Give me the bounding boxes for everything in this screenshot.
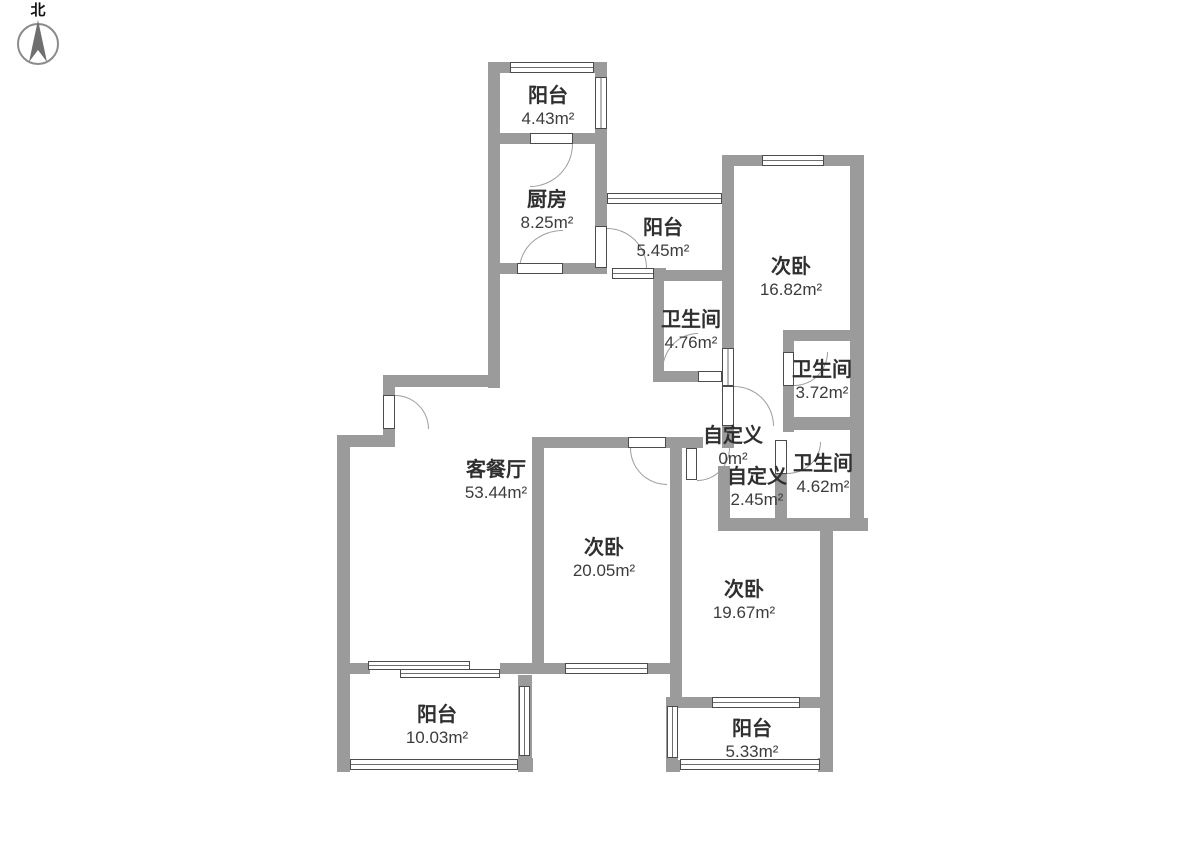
window-icon [612, 268, 654, 279]
wall-segment [722, 155, 734, 348]
wall-segment [532, 437, 628, 448]
window-icon [595, 77, 607, 129]
room-label-bedroom-northeast: 次卧16.82m² [760, 255, 822, 301]
wall-segment [653, 371, 698, 382]
room-label-custom-zero: 自定义0m² [703, 424, 763, 470]
wall-segment [664, 270, 722, 281]
wall-segment [337, 435, 350, 675]
room-label-bedroom-southeast: 次卧19.67m² [713, 578, 775, 624]
room-label-living-dining: 客餐厅53.44m² [465, 458, 527, 504]
door-swing-arc [630, 448, 667, 485]
floorplan-canvas: 北 阳台4.43m² 厨房8.25m² 阳台5.45m² 次卧16.82m² 卫… [0, 0, 1200, 860]
wall-segment [824, 155, 850, 166]
compass-icon [14, 20, 62, 66]
wall-segment [500, 663, 565, 674]
door-swing-arc [530, 144, 573, 187]
wall-segment [488, 263, 517, 274]
wall-segment [488, 133, 530, 144]
door-leaf [722, 386, 734, 426]
door-leaf [686, 448, 697, 480]
window-icon [762, 155, 824, 166]
window-icon [667, 706, 678, 758]
wall-segment [718, 518, 868, 531]
wall-segment [666, 760, 680, 772]
room-label-bathroom-middle: 卫生间4.76m² [661, 308, 721, 354]
wall-segment [488, 62, 510, 73]
room-label-custom-hall: 自定义2.45m² [727, 465, 787, 511]
wall-segment [734, 155, 762, 166]
room-label-balcony-service: 阳台5.45m² [637, 216, 690, 262]
window-icon [607, 193, 722, 204]
wall-segment [532, 437, 544, 674]
room-label-balcony-south: 阳台5.33m² [726, 717, 779, 763]
door-leaf [517, 263, 563, 274]
room-label-bathroom-upper: 卫生间3.72m² [792, 358, 852, 404]
door-swing-arc [395, 395, 429, 429]
wall-segment [820, 518, 833, 772]
door-swing-arc [734, 386, 774, 426]
wall-segment [648, 663, 682, 674]
wall-segment [383, 375, 490, 387]
window-icon [565, 663, 648, 674]
window-icon [712, 697, 800, 708]
door-leaf [698, 371, 722, 382]
room-label-balcony-north: 阳台4.43m² [522, 84, 575, 130]
compass-north-label: 北 [12, 2, 64, 20]
wall-segment [337, 675, 350, 770]
window-icon [722, 348, 734, 386]
window-icon [519, 686, 530, 756]
compass: 北 [12, 2, 64, 71]
window-icon [400, 669, 500, 678]
door-leaf [383, 395, 395, 429]
wall-segment [337, 758, 350, 772]
wall-segment [383, 375, 395, 395]
door-leaf [628, 437, 666, 448]
wall-segment [488, 62, 500, 388]
room-label-bedroom-middle: 次卧20.05m² [573, 536, 635, 582]
room-label-balcony-southwest: 阳台10.03m² [406, 703, 468, 749]
room-label-kitchen: 厨房8.25m² [521, 188, 574, 234]
door-leaf [530, 133, 573, 144]
window-icon [350, 759, 518, 770]
wall-segment [783, 417, 853, 430]
door-leaf [595, 226, 607, 268]
window-icon [510, 62, 594, 73]
room-label-bathroom-lower: 卫生间4.62m² [793, 452, 853, 498]
